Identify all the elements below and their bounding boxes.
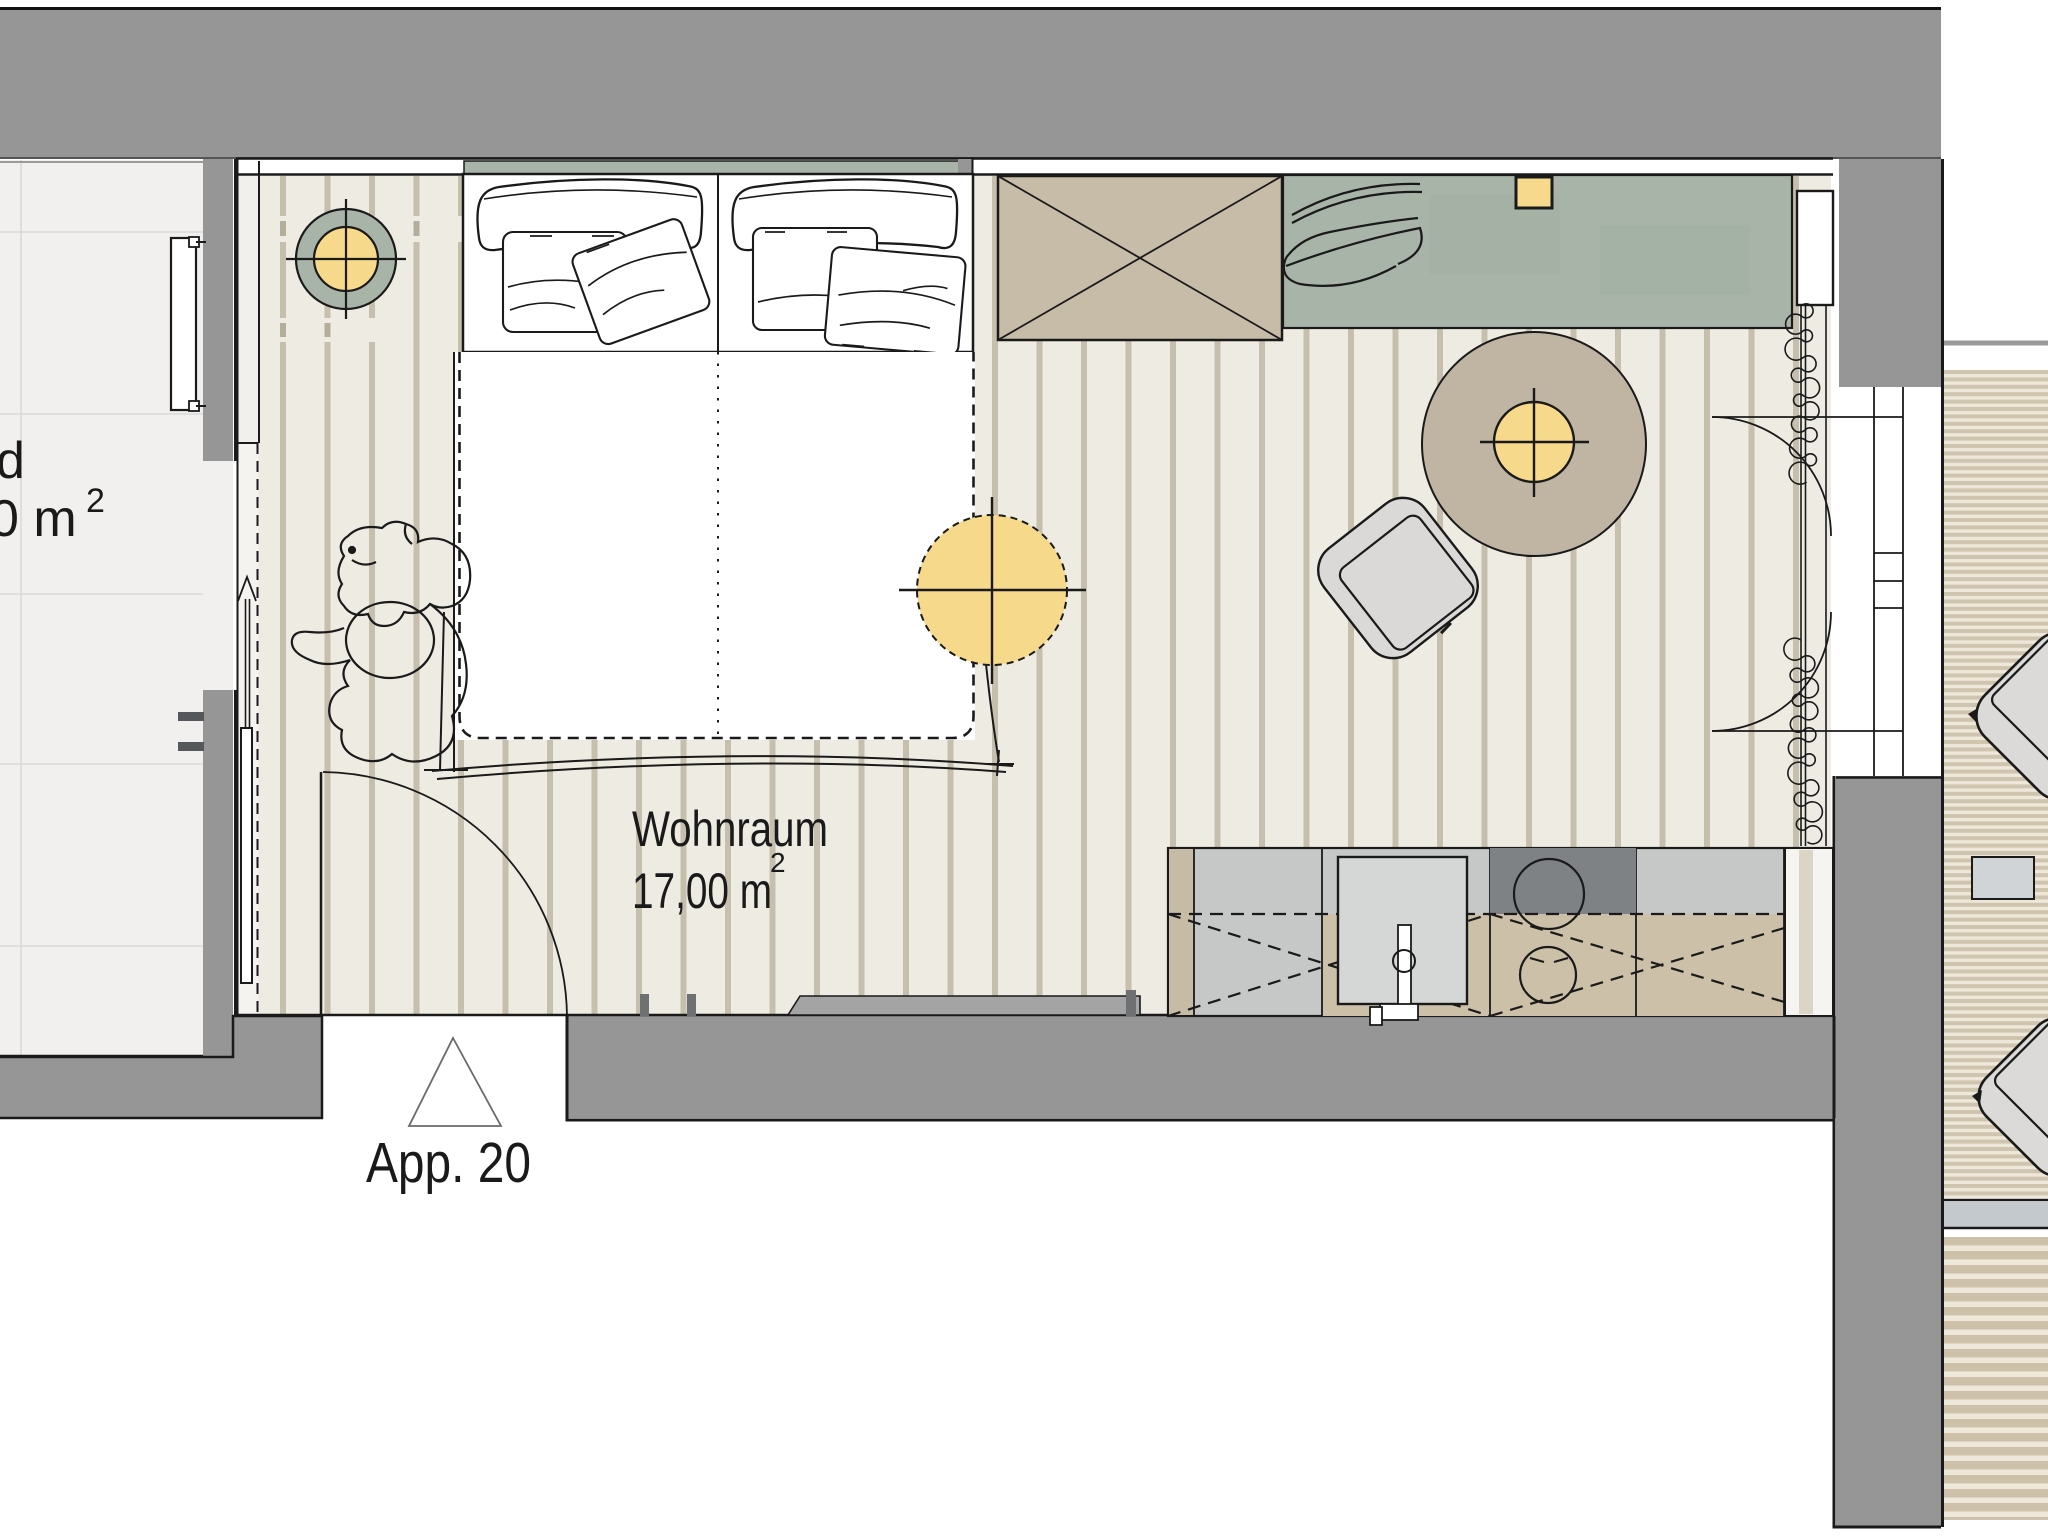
svg-text:Wohnraum: Wohnraum: [632, 801, 828, 857]
svg-text:2: 2: [86, 482, 105, 520]
svg-text:d: d: [0, 432, 25, 490]
svg-text:17,00 m: 17,00 m: [632, 863, 772, 919]
svg-text:2: 2: [770, 847, 786, 878]
svg-text:App. 20: App. 20: [366, 1131, 531, 1195]
svg-text:0 m: 0 m: [0, 490, 77, 548]
